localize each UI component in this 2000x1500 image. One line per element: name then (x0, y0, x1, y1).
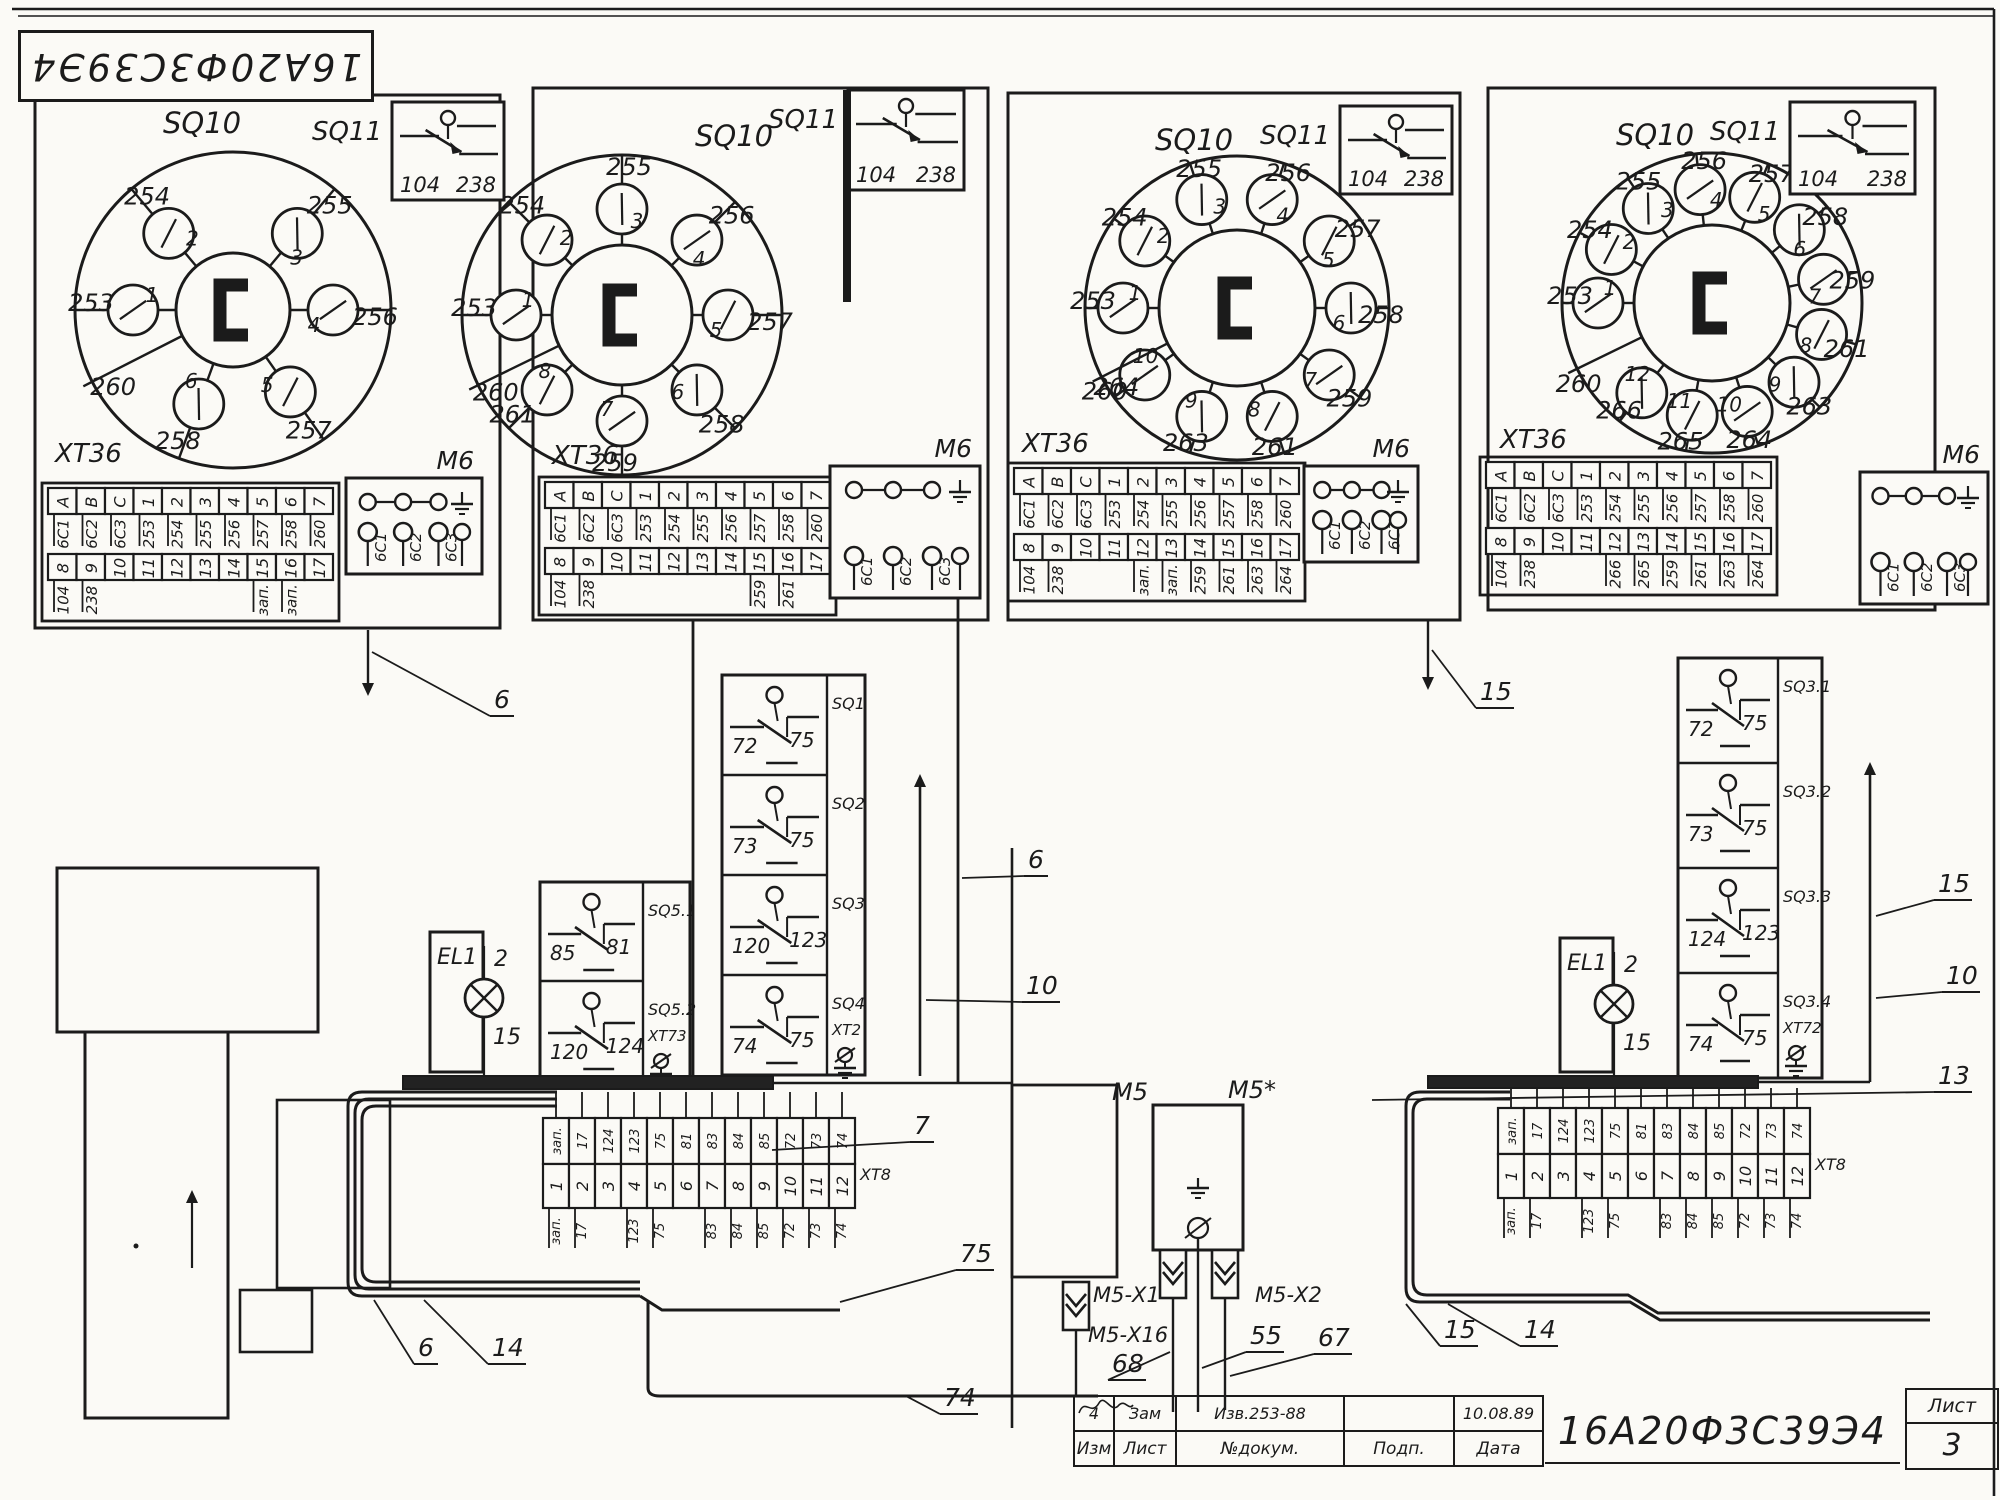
wire-number-annotation: 6 (494, 685, 510, 714)
leader-line (1406, 1304, 1440, 1346)
wire-number-annotation: 15 (1444, 1315, 1476, 1344)
leader-line (1230, 1354, 1314, 1376)
sheet-label: Лист (1907, 1390, 1997, 1424)
wire-number-annotation: 7 (914, 1111, 930, 1140)
wire-number-annotation: 74 (944, 1383, 976, 1412)
leader-line (906, 1396, 940, 1414)
wire-number-annotation: 14 (492, 1333, 524, 1362)
wire-number-annotation: 10 (1946, 961, 1978, 990)
leader-line (840, 1270, 956, 1302)
header-cell: №докум. (1177, 1432, 1345, 1467)
wire-number-annotation: 10 (1026, 971, 1058, 1000)
title-block-header-row: Изм Лист №докум. Подп. Дата (1075, 1432, 1544, 1467)
wire-number-annotation: 67 (1318, 1323, 1350, 1352)
title-block-revision-row: 4 Зам Изв.253-88 10.08.89 (1075, 1395, 1544, 1432)
title-block: 4 Зам Изв.253-88 10.08.89 Изм Лист №доку… (1073, 1395, 1544, 1467)
leader-line (772, 1142, 910, 1150)
sheet-corner: Лист 3 (1905, 1388, 1999, 1470)
wire-number-annotation: 6 (1028, 845, 1044, 874)
leader-line (962, 876, 1024, 878)
wire-number-annotation: 55 (1250, 1321, 1282, 1350)
wire-number-annotation: 75 (960, 1239, 992, 1268)
revision-cell: Изв.253-88 (1177, 1395, 1345, 1432)
wire-number-annotation: 13 (1938, 1061, 1970, 1090)
flipped-doc-code: 16А20Ф3С39Э4 (29, 45, 362, 88)
wire-number-annotation: 14 (1524, 1315, 1556, 1344)
header-cell: Изм (1075, 1432, 1115, 1467)
date-cell: 10.08.89 (1455, 1395, 1544, 1432)
wire-annotations-layer: 615610775614746855671514151013 (0, 0, 2000, 1500)
doc-code: 16А20Ф3С39Э4 (1545, 1400, 1900, 1464)
header-cell: Дата (1455, 1432, 1544, 1467)
leader-line (926, 1000, 1022, 1002)
sheet-number: 3 (1907, 1424, 1997, 1468)
wire-number-annotation: 15 (1480, 677, 1512, 706)
flipped-doc-code-box: 16А20Ф3С39Э4 (18, 30, 374, 102)
wire-number-annotation: 6 (418, 1333, 434, 1362)
leader-line (1432, 650, 1476, 708)
leader-line (1876, 992, 1942, 998)
wire-number-annotation: 68 (1112, 1349, 1144, 1378)
leader-line (1372, 1092, 1934, 1100)
leader-line (374, 1300, 414, 1364)
schematic-sheet: SQ10125322543255425652576258260SQ1110423… (0, 0, 2000, 1500)
leader-line (372, 652, 490, 716)
header-cell: Лист (1115, 1432, 1177, 1467)
leader-line (1202, 1352, 1246, 1368)
wire-number-annotation: 15 (1938, 869, 1970, 898)
leader-line (1876, 900, 1934, 916)
header-cell: Подп. (1345, 1432, 1455, 1467)
signature-cell (1345, 1395, 1455, 1432)
